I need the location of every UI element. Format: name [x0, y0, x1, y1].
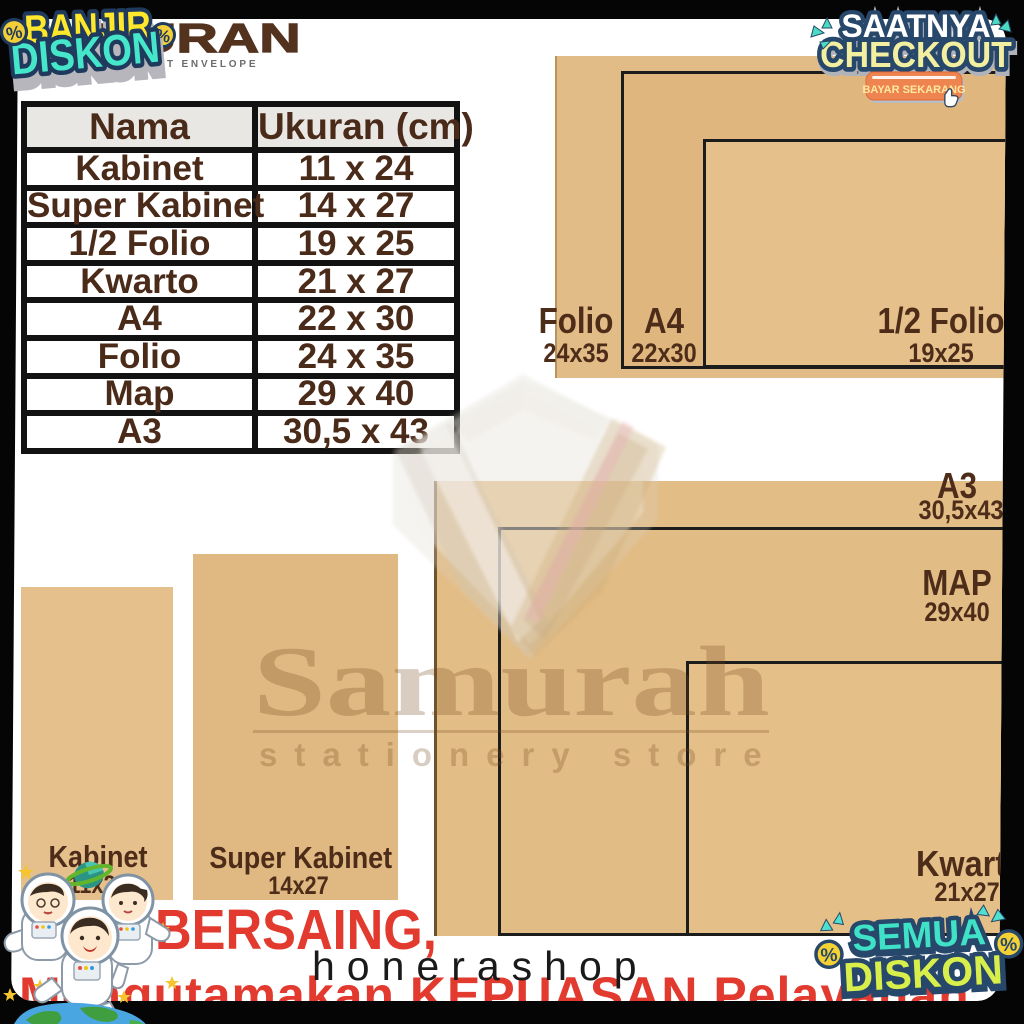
svg-text:DISKON: DISKON — [842, 946, 1004, 1000]
svg-text:%: % — [1000, 934, 1018, 956]
svg-text:CHECKOUT: CHECKOUT — [820, 35, 1012, 75]
svg-text:%: % — [820, 945, 838, 967]
